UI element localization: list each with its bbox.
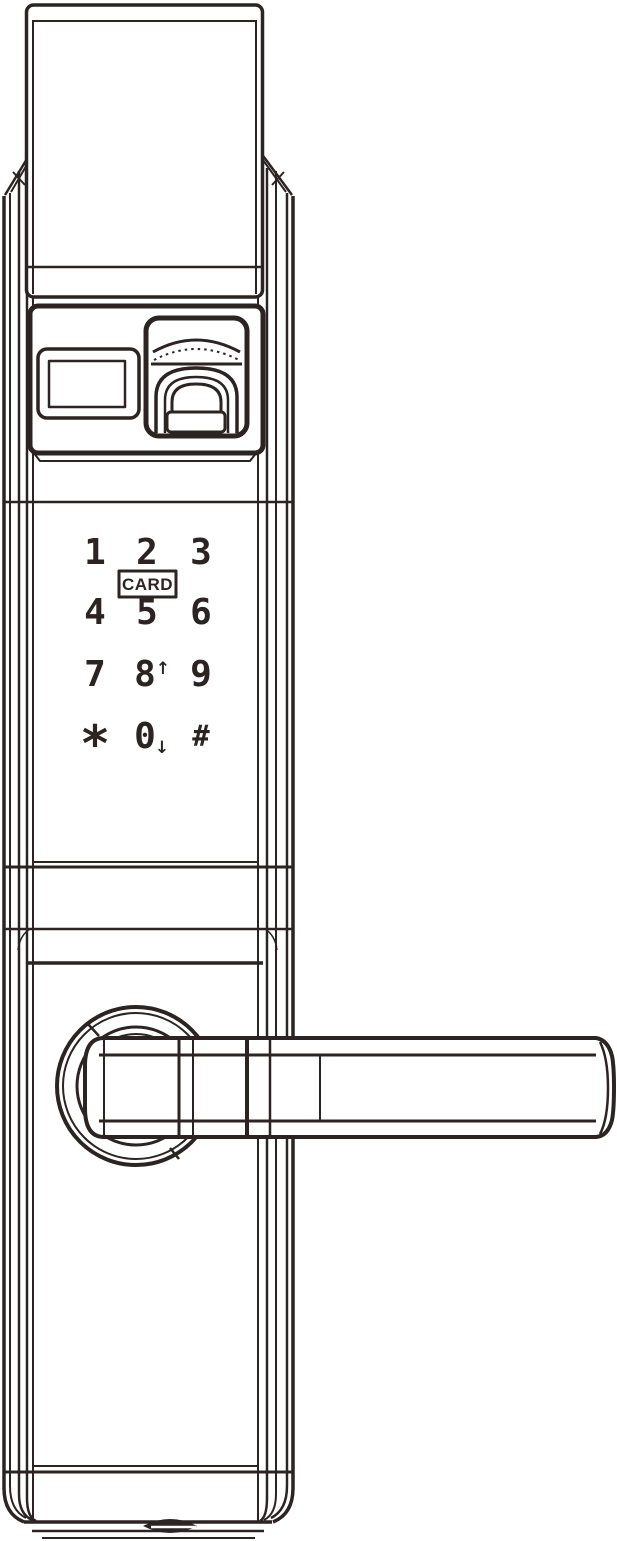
key-3[interactable]: 3 [190, 532, 212, 573]
smart-lock-drawing: 1 2 3 CARD 4 5 6 7 8 ↑ 9 * 0 ↓ # [0, 0, 617, 1541]
top-cap [27, 5, 263, 297]
key-6[interactable]: 6 [190, 592, 212, 633]
key-star[interactable]: * [80, 715, 110, 773]
key-7[interactable]: 7 [84, 654, 106, 695]
key-9[interactable]: 9 [190, 654, 212, 695]
key-0-down-arrow-icon: ↓ [155, 738, 169, 758]
key-hash[interactable]: # [192, 719, 210, 753]
fingerprint-panel [30, 306, 263, 453]
key-5[interactable]: 5 [136, 592, 158, 633]
key-1[interactable]: 1 [84, 532, 106, 573]
body-edge-left-outer [4, 196, 24, 1522]
handle-lever[interactable] [85, 1038, 614, 1137]
key-2[interactable]: 2 [136, 532, 158, 573]
handle [57, 1007, 614, 1165]
key-4[interactable]: 4 [84, 592, 106, 633]
key-8[interactable]: 8 [134, 654, 156, 695]
keypad: 1 2 3 CARD 4 5 6 7 8 ↑ 9 * 0 ↓ # [80, 532, 212, 773]
top-cap-face [27, 5, 263, 297]
body-edge-right-2 [271, 193, 287, 1518]
fingerprint-sensor-window[interactable] [167, 412, 225, 432]
key-8-up-arrow-icon: ↑ [156, 659, 170, 679]
key-0[interactable]: 0 [134, 716, 156, 757]
